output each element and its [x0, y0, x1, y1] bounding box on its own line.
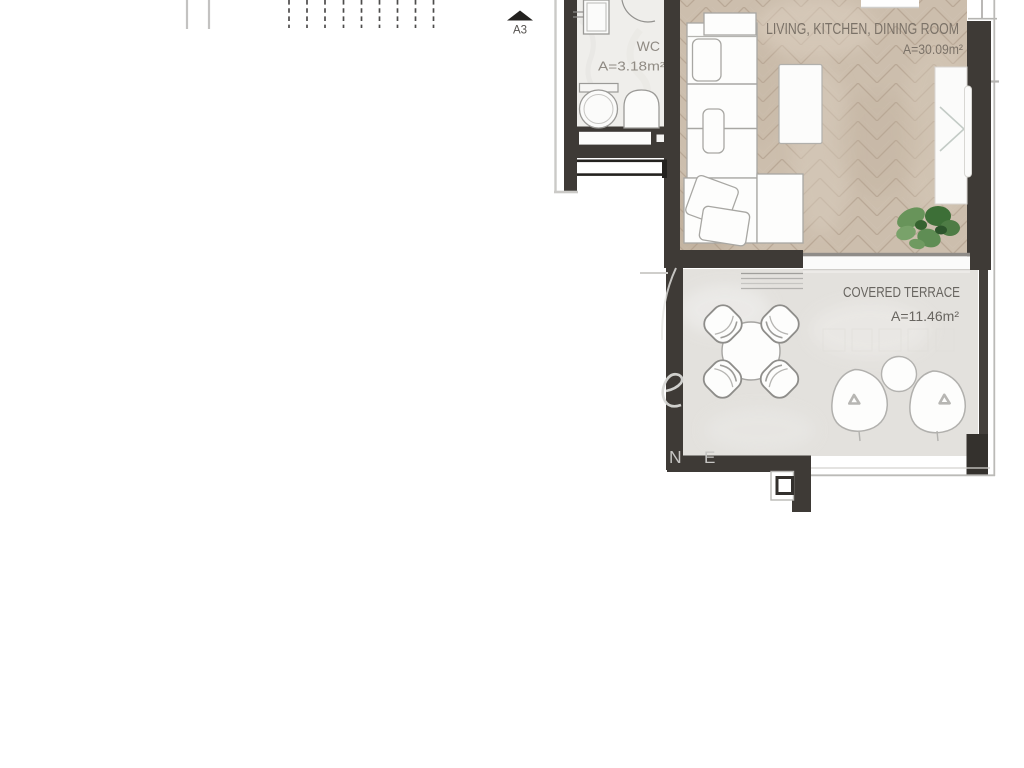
- svg-text:LIVING, KITCHEN, DINING ROOM: LIVING, KITCHEN, DINING ROOM: [766, 21, 959, 38]
- svg-text:N: N: [669, 447, 682, 467]
- svg-text:E: E: [704, 448, 715, 467]
- svg-text:A=30.09m²: A=30.09m²: [903, 41, 963, 57]
- svg-text:WC: WC: [637, 38, 660, 54]
- svg-text:A=11.46m²: A=11.46m²: [891, 309, 960, 324]
- svg-text:A=3.18m²: A=3.18m²: [598, 60, 665, 74]
- svg-text:A3: A3: [513, 25, 527, 37]
- svg-text:COVERED TERRACE: COVERED TERRACE: [843, 285, 960, 301]
